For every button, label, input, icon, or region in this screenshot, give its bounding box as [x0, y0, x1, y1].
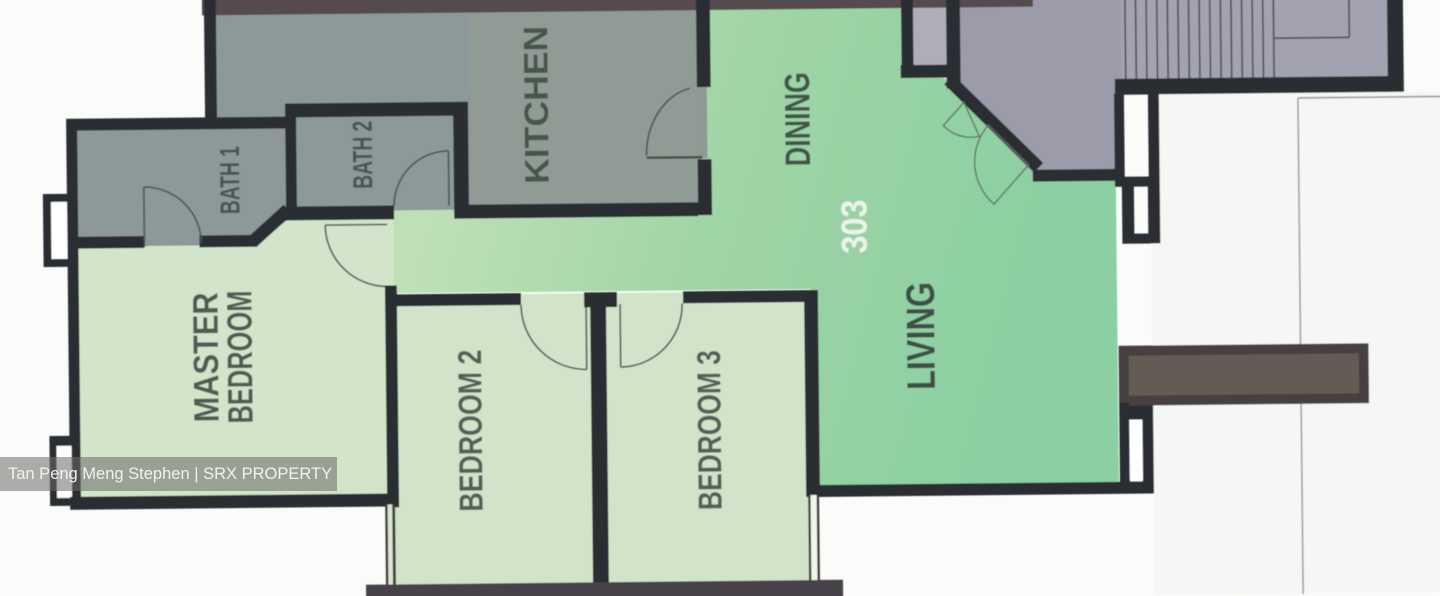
svg-text:LIVING: LIVING: [899, 282, 944, 390]
svg-text:BATH 2: BATH 2: [347, 121, 379, 189]
svg-text:DINING: DINING: [778, 72, 818, 166]
svg-text:BEDROOM 2: BEDROOM 2: [451, 349, 490, 511]
svg-text:303: 303: [833, 199, 875, 253]
svg-text:BATH 1: BATH 1: [214, 146, 246, 214]
svg-text:BEDROOM: BEDROOM: [220, 290, 260, 423]
svg-text:BEDROOM 3: BEDROOM 3: [690, 350, 729, 510]
svg-text:KITCHEN: KITCHEN: [517, 26, 557, 184]
